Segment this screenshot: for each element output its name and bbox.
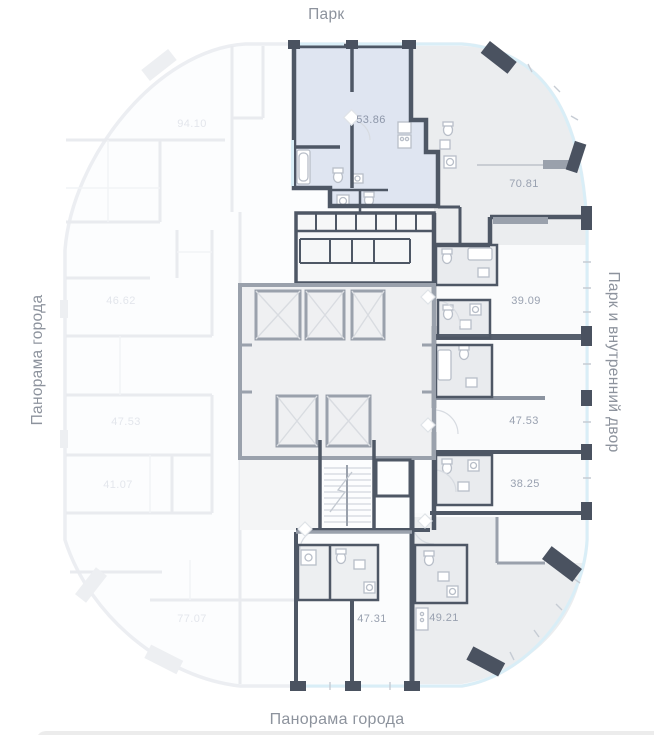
area-47-53: 47.53 xyxy=(509,415,539,427)
area-53-86: 53.86 xyxy=(356,114,386,126)
area-39-09: 39.09 xyxy=(511,295,541,307)
area-47-31: 47.31 xyxy=(357,613,387,625)
bottom-panel-edge xyxy=(36,731,654,735)
core-corridor xyxy=(240,458,320,530)
floorplan-page: Парк Панорама города Парк и внутренний д… xyxy=(0,0,654,735)
faded-area: 77.07 xyxy=(177,613,207,625)
floorplan-svg: 94.10 46.62 47.53 41.07 77.07 xyxy=(0,0,654,735)
core-elevators xyxy=(240,285,434,458)
area-38-25: 38.25 xyxy=(510,478,540,490)
faded-area: 94.10 xyxy=(177,118,207,130)
faded-area: 47.53 xyxy=(111,416,141,428)
faded-area: 46.62 xyxy=(106,295,136,307)
area-70-81: 70.81 xyxy=(509,178,539,190)
faded-area: 41.07 xyxy=(103,479,133,491)
area-49-21: 49.21 xyxy=(429,612,459,624)
